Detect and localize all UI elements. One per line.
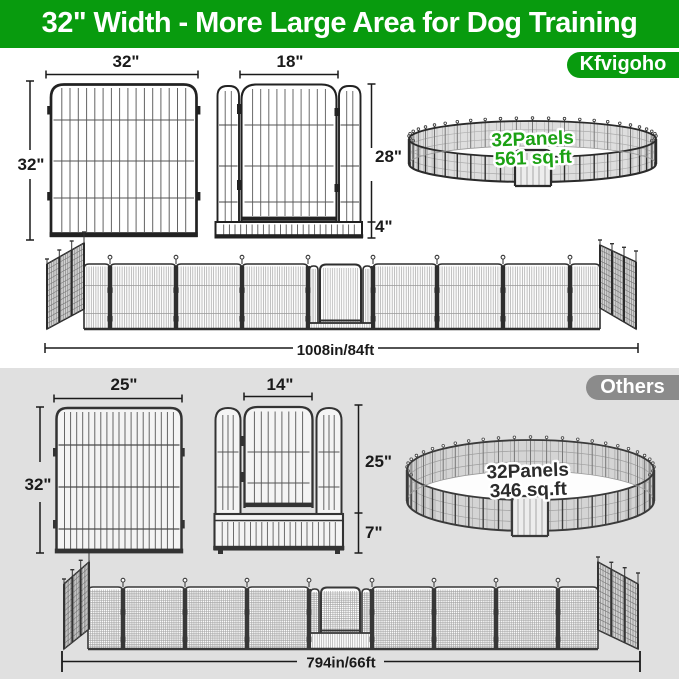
svg-text:561 sq.ft: 561 sq.ft: [494, 147, 572, 171]
svg-text:18": 18": [277, 52, 304, 71]
svg-text:25": 25": [111, 375, 138, 394]
svg-text:28": 28": [375, 147, 402, 166]
svg-text:32": 32": [25, 475, 52, 494]
svg-text:346 sq.ft: 346 sq.ft: [489, 479, 567, 503]
svg-text:25": 25": [365, 452, 392, 471]
svg-text:14": 14": [267, 375, 294, 394]
svg-text:1008in/84ft: 1008in/84ft: [297, 342, 375, 359]
svg-text:32": 32": [113, 52, 140, 71]
svg-text:7": 7": [365, 523, 383, 542]
svg-text:32": 32": [18, 155, 45, 174]
svg-text:794in/66ft: 794in/66ft: [306, 655, 375, 672]
svg-text:4": 4": [375, 217, 393, 236]
